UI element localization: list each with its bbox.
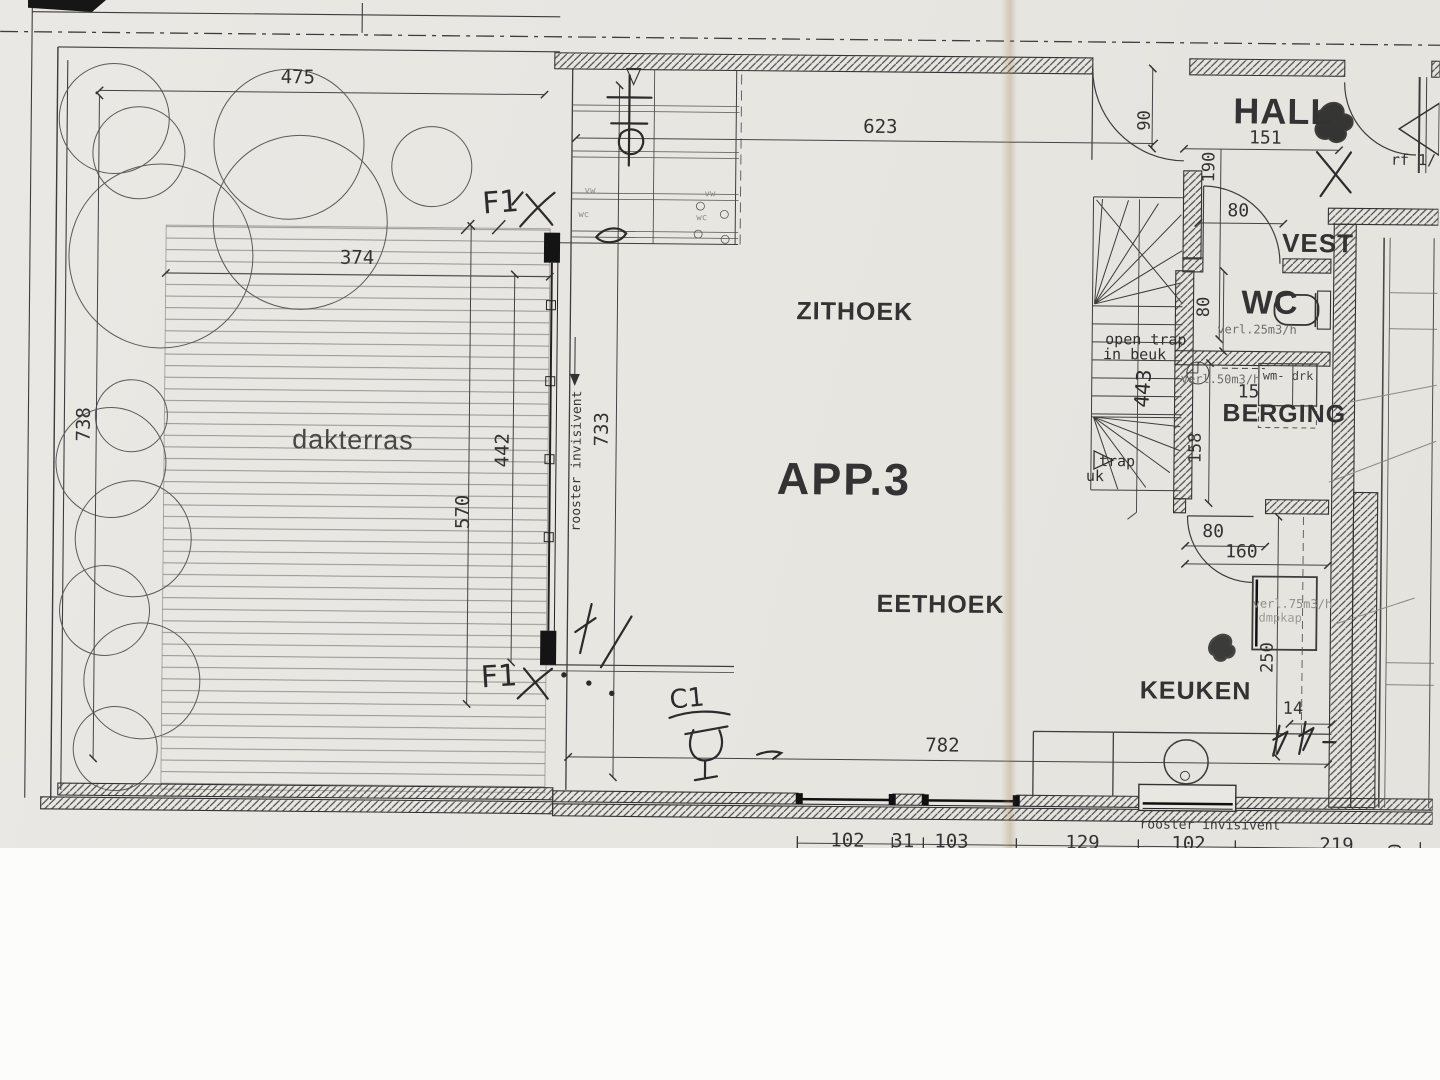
bottom-dim-103: 103 [934, 832, 969, 848]
handwritten-slashes-window [575, 604, 632, 668]
dim-90-hall: 90 [1137, 110, 1154, 131]
note-vw-left: vw [585, 187, 596, 196]
drawing-tilt-wrapper: dakterras ZITHOEK APP.3 EETHOEK KEUKEN H… [0, 0, 1440, 848]
dim-374: 374 [340, 249, 375, 268]
blueprint-paper: dakterras ZITHOEK APP.3 EETHOEK KEUKEN H… [0, 0, 1440, 848]
ink-blob-keuken [1209, 635, 1235, 661]
dim-570: 570 [454, 495, 473, 530]
bottom-dim-219: 219 [1319, 836, 1354, 848]
dim-80-door: 80 [1202, 523, 1224, 541]
dim-80-wc: 80 [1196, 297, 1213, 318]
door-arc-vest [1203, 186, 1281, 264]
note-in-beuk: in beuk [1103, 347, 1166, 363]
bottom-dim-102a: 102 [830, 831, 865, 848]
dim-80-hall: 80 [1227, 202, 1249, 220]
handwritten-f1-bottom: F1 [480, 661, 518, 693]
sink-icon [1164, 740, 1208, 784]
note-wc-left: wc [578, 211, 589, 220]
bottom-dim-129: 129 [1065, 834, 1100, 848]
room-label-zithoek: ZITHOEK [796, 299, 913, 325]
note-rooster-window: rooster invisivent [570, 390, 584, 531]
handwritten-x-hall [1317, 152, 1351, 196]
dim-442: 442 [493, 433, 512, 468]
dim-190: 190 [1201, 152, 1218, 183]
apartment-title: APP.3 [777, 456, 912, 502]
scanned-floorplan-photo: dakterras ZITHOEK APP.3 EETHOEK KEUKEN H… [0, 0, 1440, 1080]
note-rooster-bottom: rooster invisivent [1139, 818, 1280, 832]
handwritten-k-marks [1273, 722, 1335, 757]
kitchen-counter [1033, 514, 1334, 798]
room-label-vest: VEST [1282, 230, 1354, 257]
handwritten-c1: C1 [669, 684, 706, 713]
room-label-hall: HALL [1233, 93, 1333, 130]
note-dampkap: dmpkap [1258, 612, 1301, 624]
dim-160: 160 [1225, 543, 1258, 561]
room-label-wc: WC [1241, 285, 1298, 319]
note-trap: trap [1099, 454, 1135, 469]
handwritten-plant-sketch [596, 75, 652, 242]
note-uk: uk [1086, 469, 1104, 484]
dim-90-edge: 90 [1388, 844, 1405, 848]
dim-250: 250 [1259, 642, 1276, 673]
note-rf-rating: rf 1/ [1391, 153, 1436, 168]
handwritten-fixture-sketch [669, 711, 782, 781]
note-wm-drk: wm- drk [1263, 370, 1314, 382]
note-wc-right: wc [696, 214, 707, 223]
dim-623: 623 [863, 118, 898, 137]
terrace-deck [161, 225, 550, 793]
dim-158: 158 [1187, 432, 1204, 463]
room-label-eethoek: EETHOEK [877, 592, 1005, 618]
dim-14: 14 [1283, 701, 1304, 718]
note-vent-keuken: verl.75m3/h [1253, 597, 1333, 610]
note-vw-right: vw [705, 190, 716, 199]
room-label-dakterras: dakterras [292, 426, 414, 454]
note-vent-wc: verl.25m3/h [1217, 323, 1297, 336]
room-label-keuken: KEUKEN [1140, 678, 1252, 704]
vent-arrow-icon [570, 374, 580, 386]
handwritten-443: 443 [1131, 369, 1154, 409]
handwritten-f1-top: F1 [481, 187, 520, 220]
dim-738: 738 [75, 407, 94, 442]
dim-733: 733 [593, 412, 612, 447]
paper-fold-crease [1001, 0, 1017, 848]
bottom-dim-31: 31 [891, 832, 914, 848]
note-vent-berging: verl.50m3/h [1181, 373, 1261, 386]
room-label-berging: BERGING [1222, 401, 1346, 427]
bottom-dim-102b: 102 [1171, 835, 1206, 848]
dim-475: 475 [281, 68, 316, 87]
dim-151: 151 [1249, 129, 1282, 147]
dim-782: 782 [925, 736, 960, 755]
